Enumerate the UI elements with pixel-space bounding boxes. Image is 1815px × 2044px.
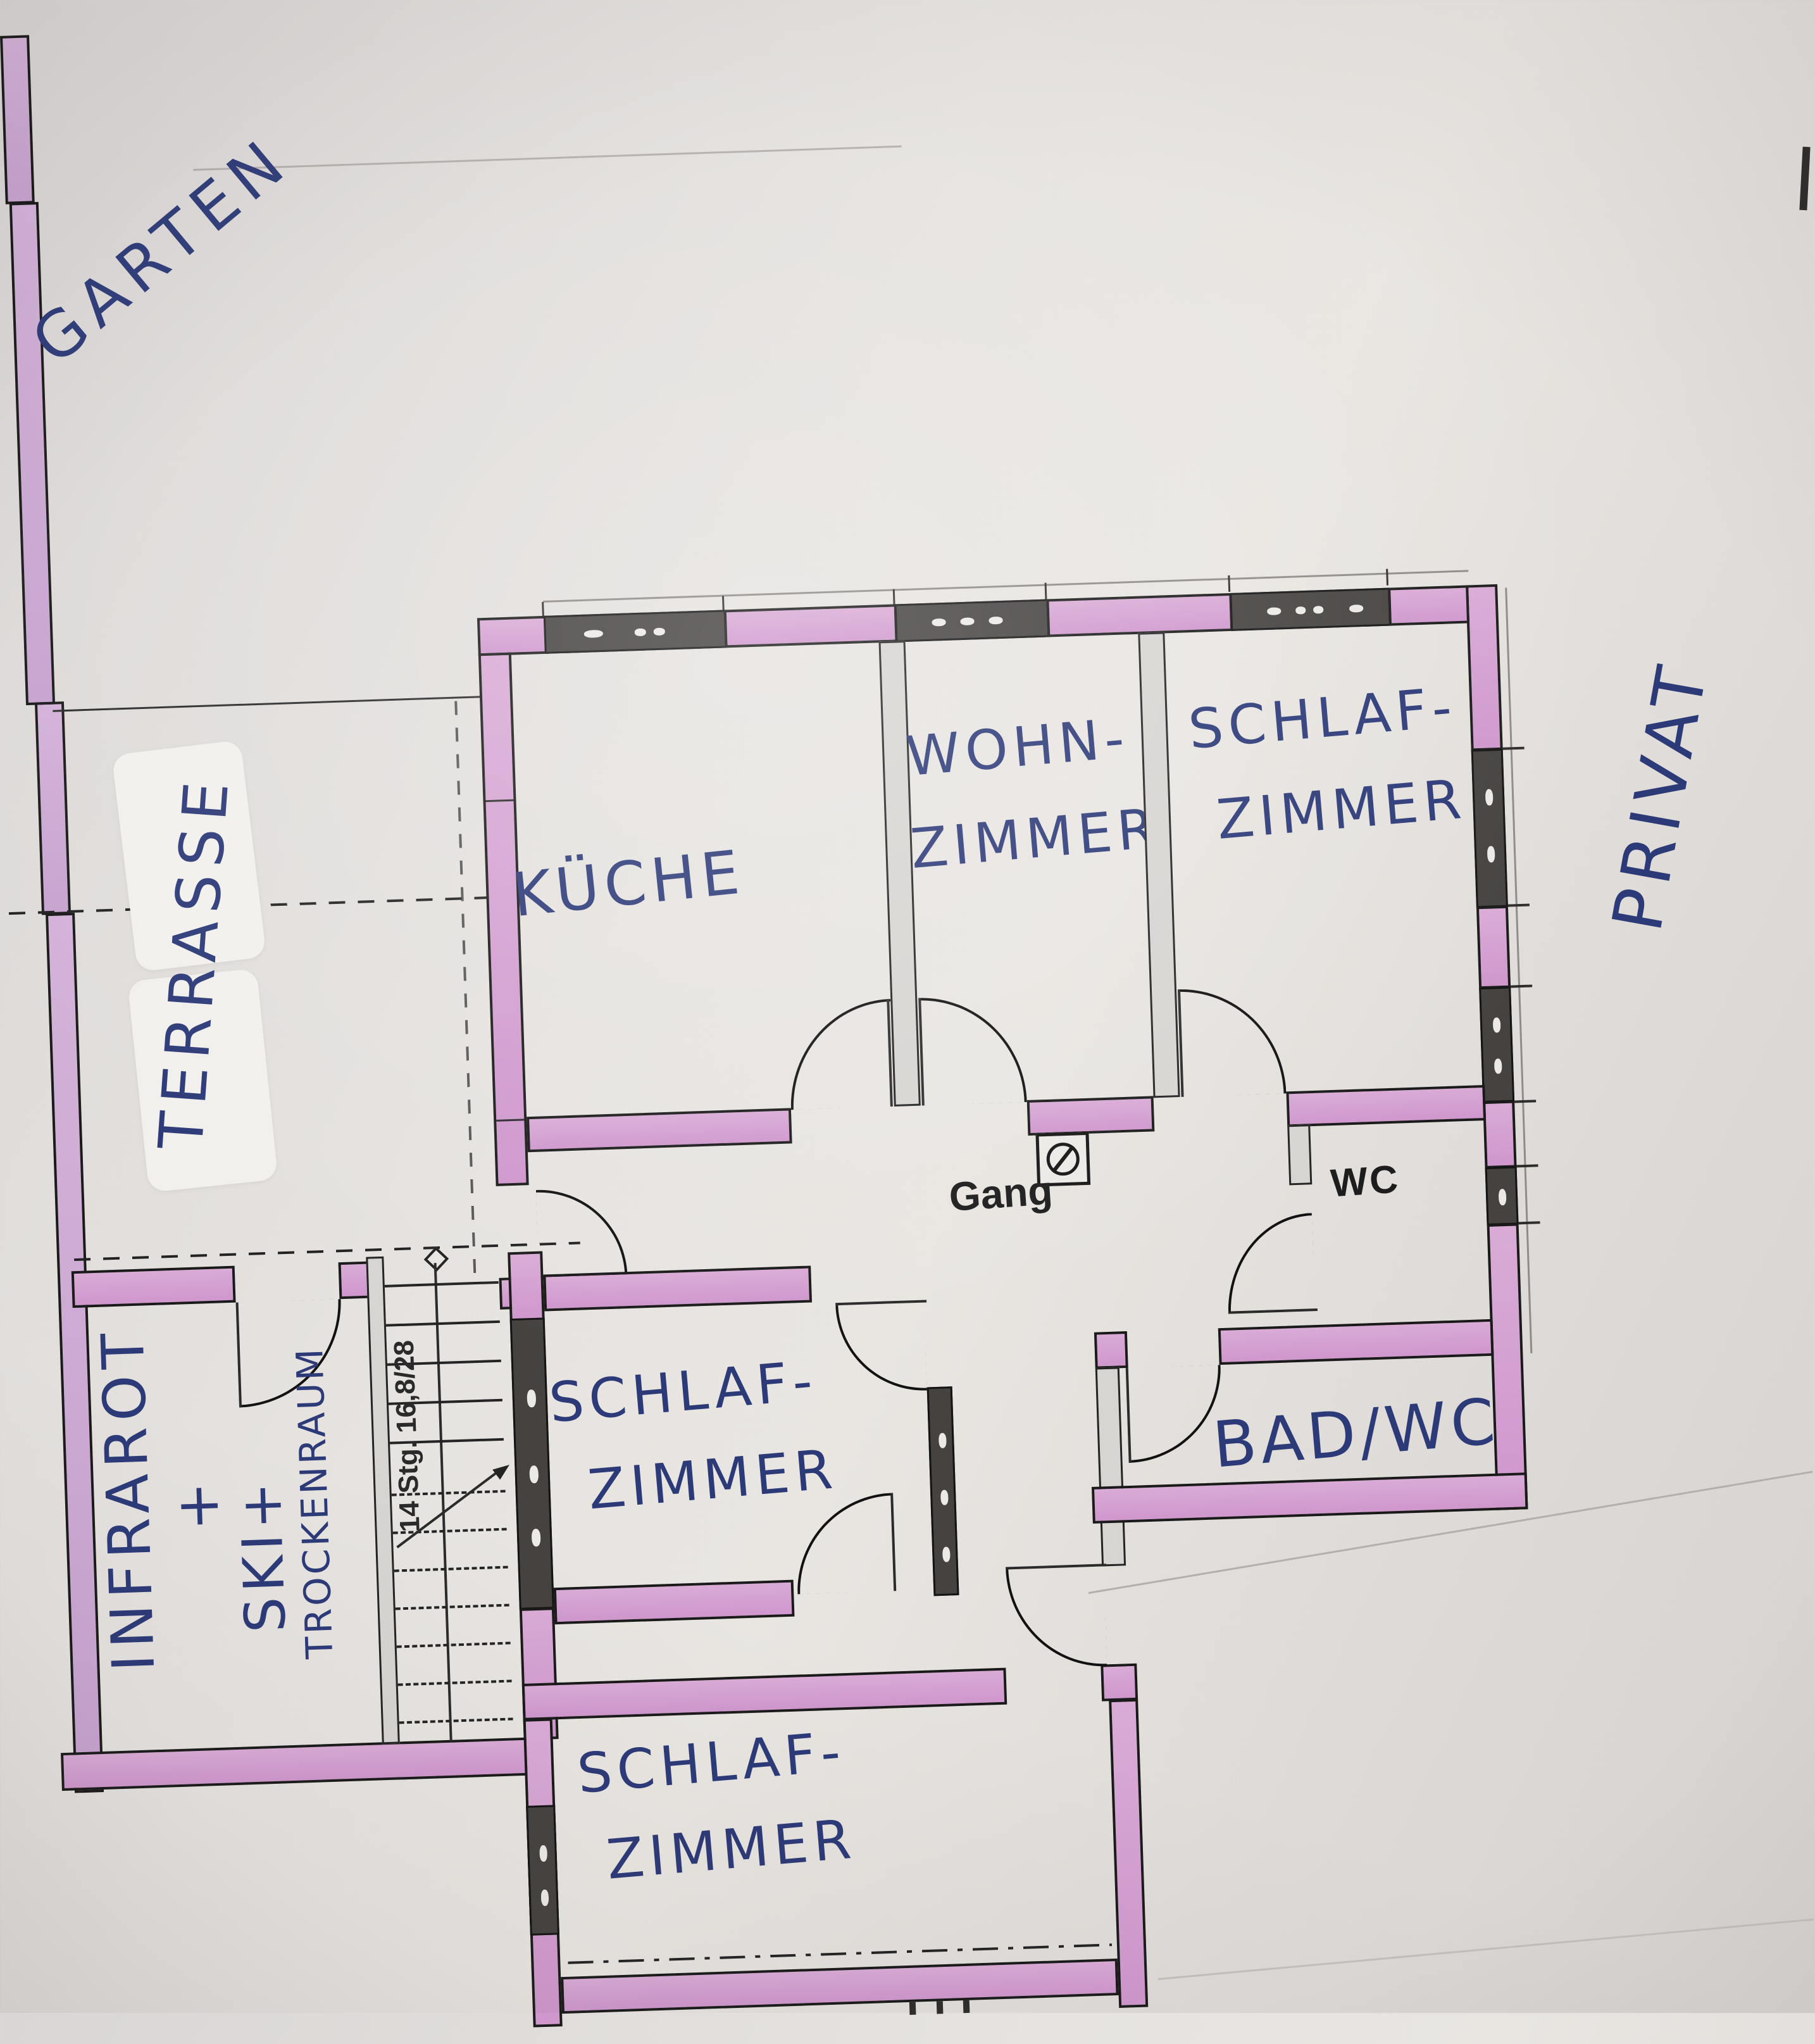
wc-west-wall: [1287, 1124, 1312, 1185]
kueche-south-wall: [527, 1108, 792, 1152]
wohnzimmer-label-line2: ZIMMER: [908, 797, 1163, 881]
infrarot-north-wall-jamb: [339, 1262, 370, 1300]
wohnzimmer-window: [895, 599, 1050, 642]
right-wall-pink-2: [1476, 906, 1511, 989]
garden-wall-lower: [9, 202, 55, 705]
stairs-east-window-wall: [510, 1317, 554, 1610]
schlafzimmer-mitte-north-door-arc: [835, 1302, 927, 1394]
bad-wc-door-arc: [1126, 1365, 1224, 1463]
entrance-door-arc: [536, 1187, 628, 1279]
schlafzimmer-sued-west-window: [526, 1805, 559, 1935]
wohnzimmer-south-wall: [1027, 1096, 1155, 1136]
stairs-east-wall-upper: [508, 1251, 545, 1322]
schlafzimmer-mitte-east-window-wall: [927, 1386, 959, 1596]
wall-tick: [1514, 1100, 1536, 1103]
bad-wc-north-wall-left: [1094, 1331, 1128, 1369]
infrarot-stairs-south-wall: [61, 1738, 530, 1791]
terrace-west-wall: [35, 701, 71, 915]
schlafzimmer-sued-label-line2: ZIMMER: [604, 1807, 859, 1891]
wall-tick: [893, 589, 895, 605]
schlafzimmer-ne-label-line2: ZIMMER: [1214, 768, 1469, 852]
terrace-overhang-dashed-line: [454, 701, 476, 1274]
wall-tick: [1516, 1164, 1538, 1167]
garten-label: GARTEN: [18, 122, 304, 379]
wohnzimmer-door-arc: [918, 994, 1027, 1105]
schlafzimmer-ne-door-arc: [1178, 986, 1287, 1097]
wall-tick: [1518, 1221, 1540, 1224]
stair-tread-dashed: [399, 1717, 513, 1724]
wc-label: WC: [1329, 1157, 1401, 1206]
wall-tick: [1508, 904, 1530, 907]
schlafzimmer-sued-north-wall-jamb: [1101, 1664, 1138, 1702]
top-wall-pink-2: [724, 604, 898, 648]
wc-door-arc: [1225, 1213, 1315, 1314]
top-wall-pink-3: [1046, 593, 1233, 637]
wohnzimmer-schlafzimmer-partition: [1138, 632, 1180, 1098]
right-wall-pink-1: [1466, 584, 1503, 751]
bad-wc-label: BAD/WC: [1210, 1384, 1502, 1482]
building-south-wall-right: [1092, 1472, 1528, 1524]
kueche-door-arc: [787, 999, 894, 1110]
kueche-label: KÜCHE: [509, 837, 747, 931]
schlafzimmer-sued-door-arc: [1006, 1565, 1107, 1669]
schlafzimmer-mitte-south-wall: [554, 1580, 795, 1625]
schlafzimmer-mitte-label-line1: SCHLAF-: [547, 1349, 820, 1435]
schlafzimmer-ne-label-line1: SCHLAF-: [1186, 675, 1459, 762]
wall-tick: [1503, 747, 1525, 750]
stairs-label: 14 Stg. 16,8/28: [389, 1339, 427, 1533]
corridor-stub-east-wall: [1095, 1367, 1126, 1566]
wall-tick: [1511, 984, 1532, 988]
wall-tick: [937, 2001, 944, 2014]
stair-tread-dashed: [397, 1642, 511, 1648]
kueche-window: [544, 610, 727, 654]
wall-tick: [1386, 569, 1388, 586]
stairs-center-line: [434, 1263, 452, 1742]
gang-label: Gang: [947, 1167, 1054, 1220]
infrarot-north-wall: [72, 1266, 236, 1308]
schlafzimmer-sued-label-line1: SCHLAF-: [575, 1720, 848, 1806]
top-wall-pink-4: [1388, 585, 1470, 625]
garden-wall-upper: [0, 35, 35, 204]
infrarot-label-plus: +: [174, 1470, 225, 1539]
wall-tick: [963, 2000, 970, 2013]
schlafzimmer-sued-south-wall: [561, 1959, 1118, 2014]
privat-label: PRIVAT: [1598, 655, 1724, 937]
stair-tread: [385, 1281, 499, 1288]
scanned-floor-plan-photo: { "document": { "kind": "hand-annotated …: [0, 0, 1815, 2013]
terrace-top-line: [53, 696, 480, 712]
floor-plan-drawing: GARTEN TERRASSE PRIVAT: [0, 0, 1815, 2044]
stair-direction-arrow: [492, 1460, 513, 1480]
right-wall-pink-3: [1483, 1100, 1516, 1169]
schlafzimmer-ne-window: [1230, 588, 1391, 631]
stair-tread: [386, 1320, 500, 1327]
stair-tread-dashed: [396, 1604, 509, 1610]
bad-wc-north-wall-right: [1218, 1319, 1494, 1365]
infrarot-label-line1: INFRAROT: [89, 1326, 168, 1673]
schlafzimmer-mitte-label-line2: ZIMMER: [585, 1438, 840, 1522]
right-wall-pink-4: [1487, 1223, 1528, 1510]
page-edge-mark: [1799, 147, 1810, 210]
schlafzimmer-ne-south-wall: [1286, 1085, 1486, 1127]
wohnzimmer-label-line1: WOHN-: [904, 706, 1132, 789]
stair-tread-dashed: [398, 1680, 512, 1686]
garden-boundary-line: [193, 146, 901, 171]
infrarot-label-line3: SKI+: [228, 1476, 298, 1634]
stair-tread-dashed: [394, 1566, 508, 1572]
right-wall-window-1: [1471, 749, 1508, 908]
bad-wc-window: [1485, 1166, 1519, 1226]
top-wall-pink-1: [477, 616, 548, 656]
schlafzimmer-sued-north-wall: [522, 1668, 1007, 1721]
schlafzimmer-mitte-south-door-arc: [794, 1493, 895, 1594]
stairs-top-dashed-line: [74, 1242, 580, 1262]
